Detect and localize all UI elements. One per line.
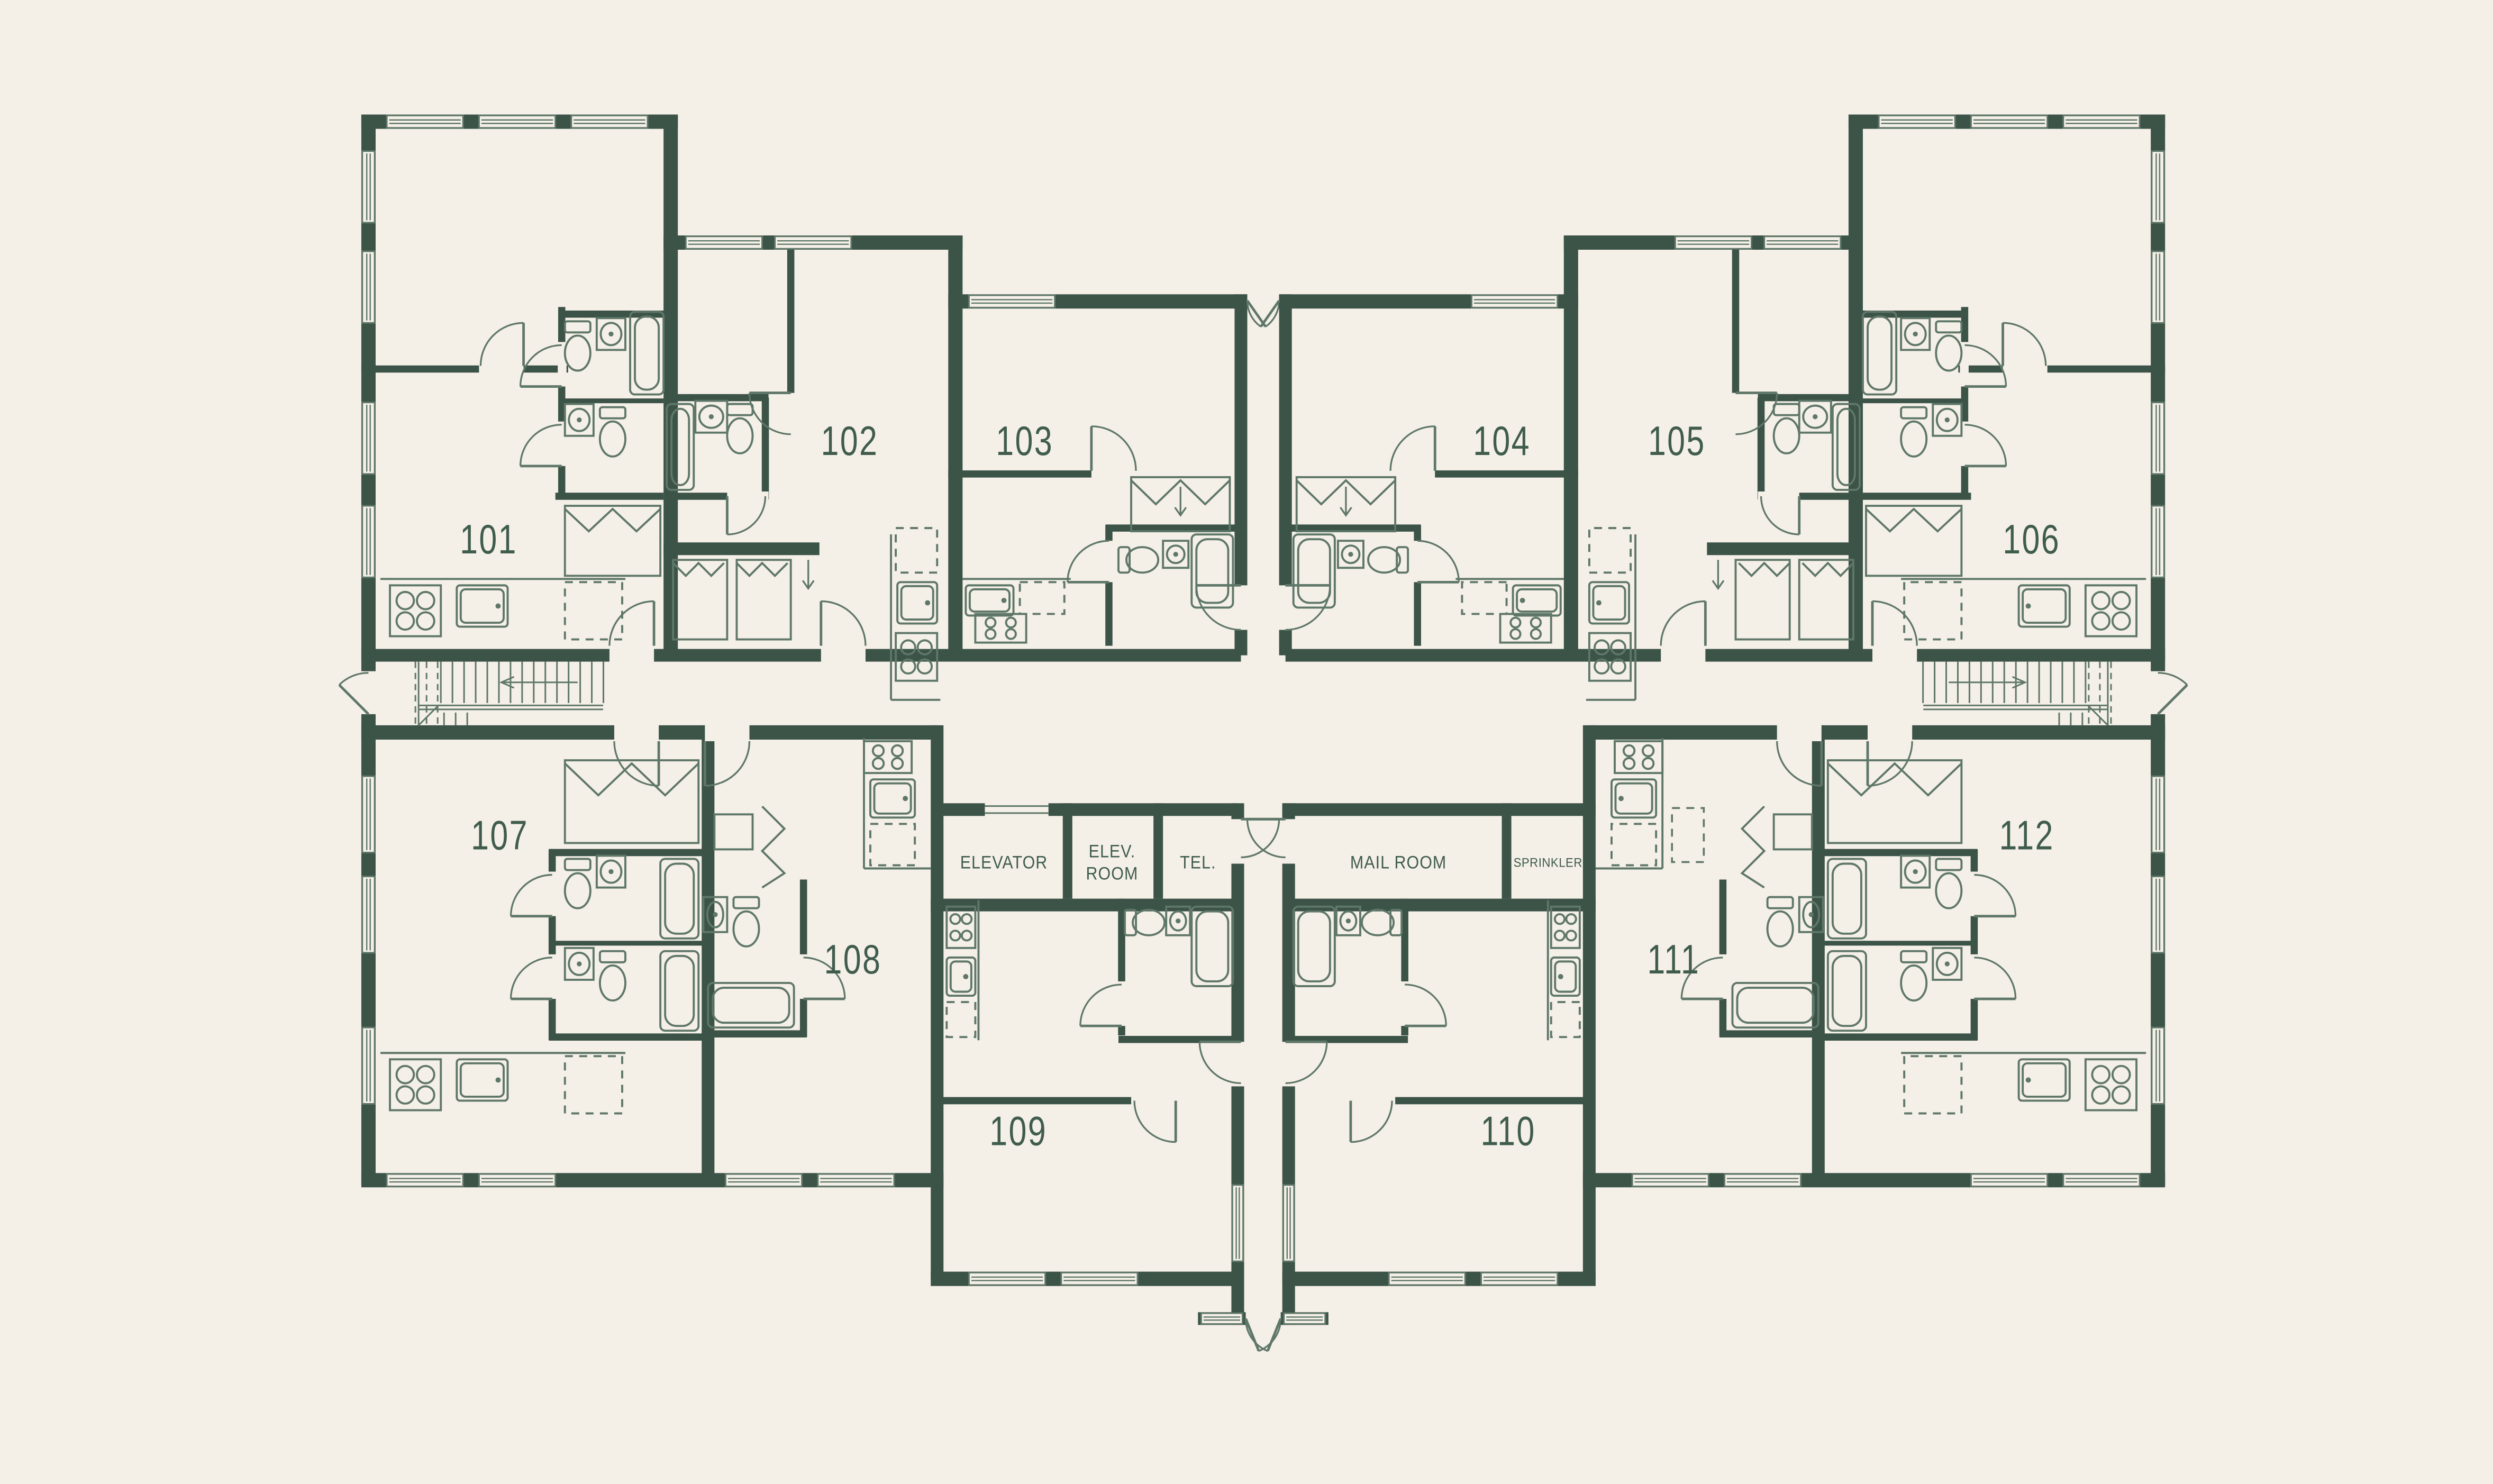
sink-faucet	[578, 418, 580, 421]
window	[387, 115, 463, 128]
window	[362, 151, 375, 223]
window	[1061, 1272, 1138, 1285]
door-opening	[821, 648, 866, 663]
unit-label-105: 105	[1648, 418, 1706, 464]
unit-label-108: 108	[824, 936, 882, 982]
sink-faucet	[1175, 553, 1177, 556]
unit-label-110: 110	[1480, 1108, 1535, 1154]
sink-faucet	[710, 415, 713, 418]
door-opening	[1117, 981, 1126, 1026]
unit-label-106: 106	[2003, 516, 2060, 562]
kitchen-faucet	[904, 797, 907, 800]
mail-room-label: MAIL ROOM	[1350, 852, 1446, 872]
door-opening	[548, 872, 557, 916]
window	[969, 295, 1054, 307]
kitchen-faucet	[964, 975, 967, 978]
kitchen-faucet	[1003, 599, 1006, 602]
unit-label-103: 103	[996, 418, 1053, 464]
window	[362, 776, 375, 852]
kitchen-faucet	[496, 1078, 499, 1081]
door-opening	[727, 491, 768, 502]
window	[571, 115, 648, 128]
door-opening	[705, 724, 749, 741]
window	[1232, 1185, 1243, 1261]
window	[818, 1174, 894, 1186]
floor-plan-canvas: 101 102 103 104 105 106 107 108 109 110 …	[0, 0, 2493, 1484]
window	[387, 1174, 463, 1186]
sprinkler-room-label: SPRINKLER	[1514, 855, 1582, 870]
window	[362, 251, 375, 323]
unit-label-107: 107	[471, 812, 529, 858]
door-opening	[548, 954, 557, 999]
window	[725, 1174, 802, 1186]
door-opening	[609, 648, 654, 663]
door-opening	[799, 954, 808, 999]
unit-label-102: 102	[821, 418, 879, 464]
window	[362, 506, 375, 577]
background	[18, 0, 2476, 1484]
window	[362, 403, 375, 474]
sink-faucet	[1177, 919, 1179, 922]
kitchen-faucet	[496, 604, 499, 607]
elev-room-label-line2: ROOM	[1086, 863, 1139, 884]
unit-label-104: 104	[1473, 418, 1531, 464]
window	[362, 1027, 375, 1104]
window	[775, 236, 851, 249]
door-opening	[614, 724, 659, 741]
sink-faucet	[609, 870, 612, 873]
sink-faucet	[578, 962, 580, 965]
unit-label-101: 101	[460, 516, 517, 562]
elevator-label: ELEVATOR	[960, 852, 1048, 872]
elev-room-label-line1: ELEV.	[1089, 841, 1136, 861]
window	[479, 1174, 555, 1186]
window	[362, 877, 375, 953]
door-opening	[1234, 585, 1248, 630]
tel-room-label: TEL.	[1180, 852, 1216, 872]
unit-label-112: 112	[1999, 812, 2054, 858]
door-opening	[1231, 1042, 1245, 1086]
unit-label-109: 109	[989, 1108, 1047, 1154]
unit-label-111: 111	[1647, 936, 1700, 982]
sink-faucet	[609, 333, 612, 335]
door-opening	[1105, 541, 1114, 582]
window	[479, 115, 555, 128]
sink-faucet	[714, 913, 716, 916]
window	[1201, 1313, 1242, 1324]
kitchen-faucet	[926, 601, 929, 604]
window	[969, 1272, 1045, 1285]
window	[686, 236, 762, 249]
